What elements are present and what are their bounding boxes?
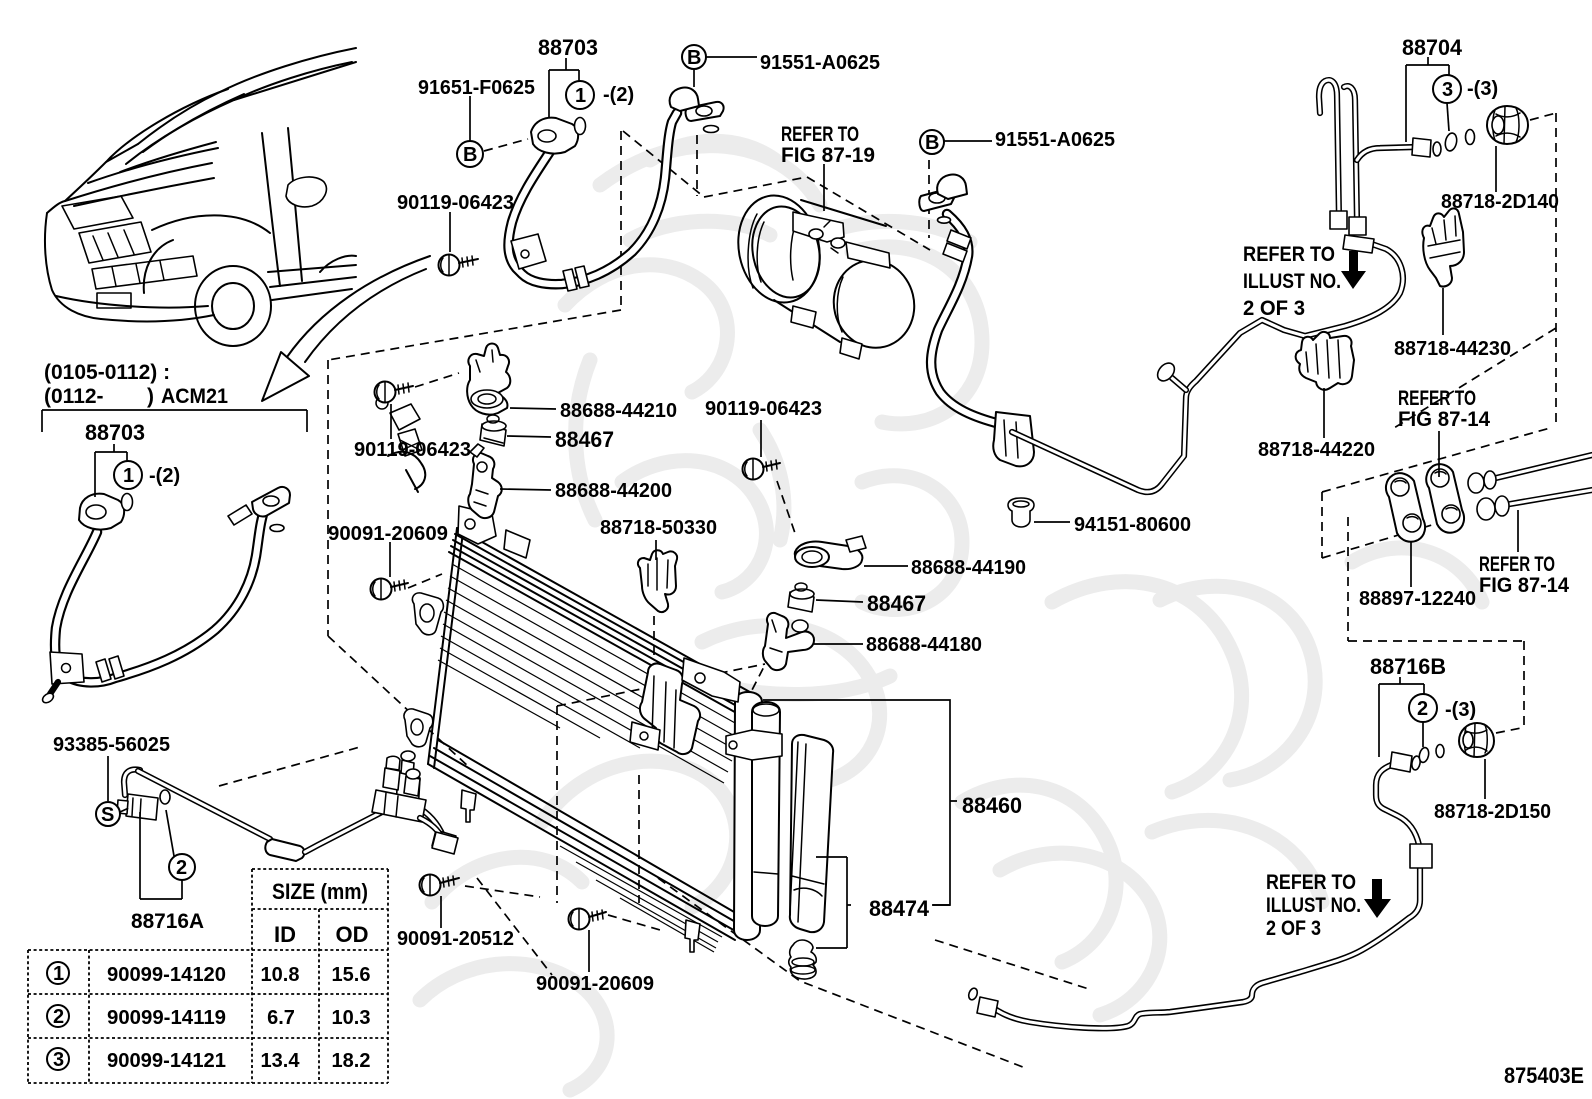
svg-text:15.6: 15.6 — [332, 964, 371, 986]
svg-text:6.7: 6.7 — [267, 1007, 295, 1029]
svg-text:B: B — [925, 132, 939, 154]
svg-text:S: S — [101, 804, 114, 826]
svg-text:ILLUST NO.: ILLUST NO. — [1266, 894, 1361, 917]
svg-text:88718-44220: 88718-44220 — [1258, 439, 1375, 461]
svg-text:ILLUST NO.: ILLUST NO. — [1243, 270, 1341, 293]
svg-text:88718-2D150: 88718-2D150 — [1434, 801, 1551, 823]
svg-text:B: B — [463, 144, 477, 166]
svg-text:91551-A0625: 91551-A0625 — [760, 52, 880, 74]
svg-text:88688-44190: 88688-44190 — [911, 557, 1026, 579]
svg-text:ACM21: ACM21 — [161, 385, 228, 408]
svg-text:1: 1 — [123, 465, 134, 487]
svg-text:3: 3 — [53, 1049, 64, 1071]
svg-text:88716A: 88716A — [131, 910, 204, 933]
svg-text:-(3): -(3) — [1467, 78, 1498, 100]
svg-text:88703: 88703 — [538, 35, 598, 60]
svg-text:88897-12240: 88897-12240 — [1359, 588, 1476, 610]
svg-text:90099-14121: 90099-14121 — [107, 1050, 226, 1072]
svg-text:(0112-: (0112- — [44, 385, 104, 408]
svg-text:13.4: 13.4 — [261, 1050, 301, 1072]
svg-text:88718-2D140: 88718-2D140 — [1441, 191, 1559, 213]
svg-text:88474: 88474 — [869, 896, 930, 921]
svg-text:-(3): -(3) — [1445, 699, 1476, 721]
svg-text:875403E: 875403E — [1504, 1063, 1584, 1088]
svg-text:2 OF 3: 2 OF 3 — [1266, 917, 1321, 940]
svg-text:91551-A0625: 91551-A0625 — [995, 129, 1115, 151]
svg-text:88688-44200: 88688-44200 — [555, 480, 672, 502]
svg-text:OD: OD — [336, 922, 369, 947]
svg-text:1: 1 — [575, 85, 586, 107]
svg-text:10.3: 10.3 — [332, 1007, 371, 1029]
svg-text:88718-50330: 88718-50330 — [600, 517, 717, 539]
svg-text:REFER TO: REFER TO — [781, 123, 859, 146]
svg-text:90099-14119: 90099-14119 — [107, 1007, 226, 1029]
svg-text:90091-20609: 90091-20609 — [328, 523, 448, 545]
svg-text:FIG 87-14: FIG 87-14 — [1479, 574, 1569, 597]
svg-text:88703: 88703 — [85, 420, 145, 445]
svg-text:90119-06423: 90119-06423 — [354, 439, 471, 461]
svg-text:FIG 87-19: FIG 87-19 — [781, 144, 875, 167]
svg-text:REFER TO: REFER TO — [1266, 871, 1356, 894]
svg-text:FIG 87-14: FIG 87-14 — [1398, 408, 1490, 431]
svg-text:REFER TO: REFER TO — [1398, 387, 1476, 410]
svg-text:2: 2 — [176, 857, 187, 879]
svg-text:88688-44210: 88688-44210 — [560, 400, 677, 422]
svg-text:18.2: 18.2 — [332, 1050, 371, 1072]
svg-text:): ) — [147, 385, 154, 408]
svg-text:88460: 88460 — [962, 793, 1022, 818]
svg-text:91651-F0625: 91651-F0625 — [418, 77, 535, 99]
svg-text:1: 1 — [53, 963, 64, 985]
svg-text:(0105-0112) :: (0105-0112) : — [44, 361, 170, 384]
svg-text:REFER TO: REFER TO — [1243, 243, 1335, 266]
svg-text:3: 3 — [1442, 79, 1453, 101]
svg-text:94151-80600: 94151-80600 — [1074, 514, 1191, 536]
svg-text:ID: ID — [274, 922, 296, 947]
svg-text:B: B — [687, 47, 701, 69]
svg-text:90099-14120: 90099-14120 — [107, 964, 226, 986]
svg-text:2: 2 — [1417, 698, 1428, 720]
svg-text:-(2): -(2) — [603, 84, 634, 106]
svg-text:-(2): -(2) — [149, 465, 180, 487]
svg-text:88467: 88467 — [555, 427, 614, 452]
svg-text:88467: 88467 — [867, 591, 926, 616]
svg-text:SIZE (mm): SIZE (mm) — [272, 879, 368, 904]
svg-text:88716B: 88716B — [1370, 654, 1446, 679]
svg-text:88718-44230: 88718-44230 — [1394, 338, 1511, 360]
svg-text:88688-44180: 88688-44180 — [866, 634, 982, 656]
svg-text:2: 2 — [53, 1006, 64, 1028]
svg-text:90091-20512: 90091-20512 — [397, 928, 514, 950]
svg-text:2 OF 3: 2 OF 3 — [1243, 297, 1305, 320]
svg-text:90091-20609: 90091-20609 — [536, 973, 654, 995]
svg-text:93385-56025: 93385-56025 — [53, 734, 170, 756]
svg-text:90119-06423: 90119-06423 — [397, 192, 514, 214]
svg-text:90119-06423: 90119-06423 — [705, 398, 822, 420]
svg-text:10.8: 10.8 — [261, 964, 300, 986]
svg-text:REFER TO: REFER TO — [1479, 553, 1555, 576]
svg-text:88704: 88704 — [1402, 35, 1463, 60]
